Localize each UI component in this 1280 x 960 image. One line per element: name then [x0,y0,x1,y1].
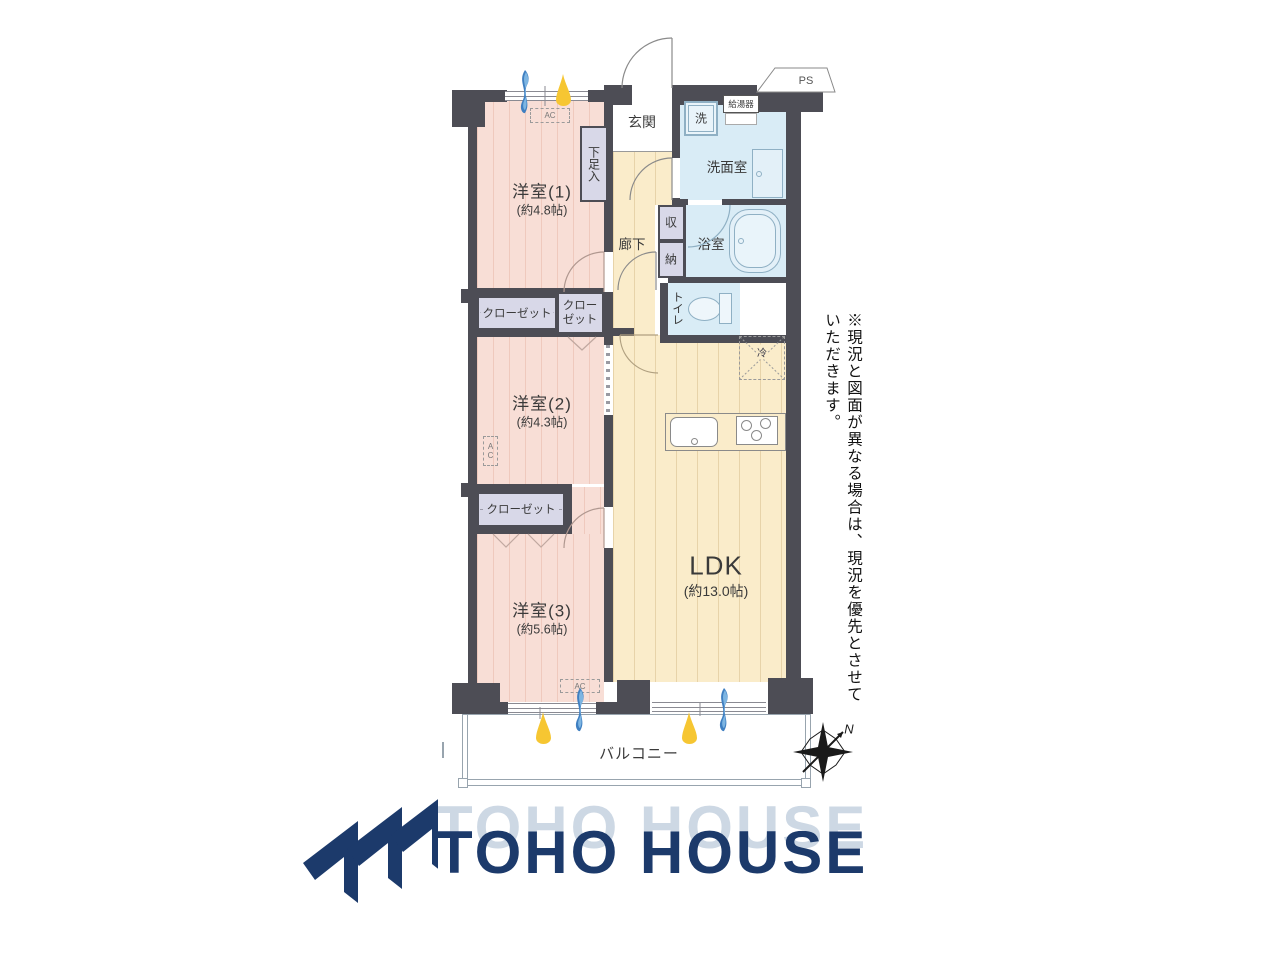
window-ticks [540,86,700,719]
brand-logo-text: TOHO HOUSE [436,818,868,887]
toilet-door-arc [618,252,656,290]
room1-door-arc [564,252,604,292]
ldk-door-arc [620,335,658,373]
wind-icon [720,688,728,731]
brand-logo-icon [303,793,438,913]
disclaimer-note: ※現況と図面が異なる場合は、現況を優先とさせていただきます。 [820,312,864,712]
wind-icon [521,70,529,113]
sun-icon [556,74,571,106]
washroom-door-arc [630,158,672,200]
sun-icon [682,712,697,744]
compass-north-label: N [844,722,853,737]
bathroom-door-arc [688,205,730,247]
wind-icon [576,688,584,731]
entrance-door-arc [622,38,672,88]
room3-door-arc [564,508,604,548]
sun-icon [536,712,551,744]
floorplan-page: 下足入 収 納 クローゼット クロー ゼット クローゼット 洗 給湯器 冷 AC… [0,0,1280,960]
